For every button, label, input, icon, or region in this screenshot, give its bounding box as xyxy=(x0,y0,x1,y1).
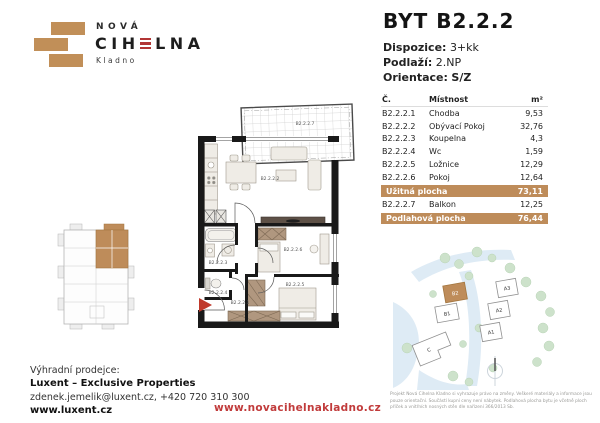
sink xyxy=(206,244,215,257)
logo-cihelna-text: CIH LNA xyxy=(95,34,205,53)
room-label-loznice: B2.2.2.5 xyxy=(286,282,305,288)
toilet xyxy=(206,278,222,289)
cell-room: Wc xyxy=(428,147,505,156)
key-plan-highlighted-unit xyxy=(96,224,128,268)
site-buildings: A3 A2 A1 B2 B1 C xyxy=(412,278,518,366)
spec-podlazi-value: 2.NP xyxy=(436,56,461,69)
building-label-a1: A1 xyxy=(487,329,495,336)
brand-logo: NOVÁ CIH LNA Kladno xyxy=(0,0,210,80)
spec-dispozice-value: 3+kk xyxy=(450,41,479,54)
cell-area: 12,29 xyxy=(505,160,548,169)
cell-no: B2.2.2.3 xyxy=(381,134,428,143)
washing-machine xyxy=(222,244,234,256)
cell-room: Balkon xyxy=(428,200,505,209)
cell-room: Obývací Pokoj xyxy=(428,122,505,131)
floor-area-value: 76,44 xyxy=(518,214,543,223)
cell-no: B2.2.2.6 xyxy=(381,173,428,182)
building-a2: A2 xyxy=(488,300,510,319)
brick-icon xyxy=(49,54,83,67)
wardrobe xyxy=(247,280,265,306)
disclaimer-text: Projekt Nová Cihelna Kladno si vyhrazuje… xyxy=(390,392,592,412)
cell-no: B2.2.2.5 xyxy=(381,160,428,169)
building-label-a2: A2 xyxy=(495,307,503,314)
building-b1: B1 xyxy=(435,303,459,323)
table-row: B2.2.2.2 Obývací Pokoj 32,76 xyxy=(381,120,548,133)
table-row: B2.2.2.3 Koupelna 4,3 xyxy=(381,133,548,146)
bathtub xyxy=(206,229,237,242)
seller-website-link[interactable]: www.luxent.cz xyxy=(30,405,112,416)
usable-area-row: Užitná plocha 73,11 xyxy=(381,185,548,197)
logo-city-text: Kladno xyxy=(96,56,137,65)
building-label-a3: A3 xyxy=(503,285,511,292)
cell-area: 4,3 xyxy=(505,134,548,143)
col-number: Č. xyxy=(381,95,428,104)
cell-room: Ložnice xyxy=(428,160,505,169)
spec-podlazi: Podlaží: 2.NP xyxy=(383,56,461,69)
table-row: B2.2.2.5 Ložnice 12,29 xyxy=(381,158,548,171)
table-row: B2.2.2.7 Balkon 12,25 xyxy=(381,198,548,211)
building-b2-highlighted: B2 xyxy=(443,282,468,303)
logo-nova-text: NOVÁ xyxy=(96,22,142,32)
room-label-koupelna: B2.2.2.3 xyxy=(209,260,228,266)
project-website-link[interactable]: www.novacihelnakladno.cz xyxy=(214,402,381,414)
spec-podlazi-label: Podlaží: xyxy=(383,56,432,69)
room-label-balkon: B2.2.2.7 xyxy=(296,121,315,127)
spec-orientace-value: S/Z xyxy=(451,71,471,84)
room-table-header: Č. Místnost m² xyxy=(381,92,548,107)
table-row: B2.2.2.6 Pokoj 12,64 xyxy=(381,171,548,184)
flat-datasheet-page: NOVÁ CIH LNA Kladno BYT B2.2.2 Dispozice… xyxy=(0,0,600,423)
cell-no: B2.2.2.2 xyxy=(381,122,428,131)
table-row: B2.2.2.4 Wc 1,59 xyxy=(381,145,548,158)
table-row: B2.2.2.1 Chodba 9,53 xyxy=(381,107,548,120)
usable-area-value: 73,11 xyxy=(518,187,543,196)
room-label-pokoj: B2.2.2.6 xyxy=(284,247,303,253)
cell-area: 1,59 xyxy=(505,147,548,156)
building-label-b2: B2 xyxy=(452,290,460,297)
double-bed xyxy=(279,288,316,320)
kitchen-counter xyxy=(205,144,218,214)
room-table: Č. Místnost m² B2.2.2.1 Chodba 9,53 B2.2… xyxy=(381,92,548,226)
cell-area: 12,64 xyxy=(505,173,548,182)
apartment-floorplan: B2.2.2.7 xyxy=(133,82,383,340)
building-a3: A3 xyxy=(496,278,518,297)
cell-room: Pokoj xyxy=(428,173,505,182)
building-label-b1: B1 xyxy=(443,311,451,318)
cell-room: Koupelna xyxy=(428,134,505,143)
compass-icon xyxy=(488,356,503,386)
spec-dispozice-label: Dispozice: xyxy=(383,41,446,54)
cell-area: 9,53 xyxy=(505,109,548,118)
cell-area: 12,25 xyxy=(505,200,548,209)
usable-area-label: Užitná plocha xyxy=(386,187,518,196)
cell-no: B2.2.2.4 xyxy=(381,147,428,156)
wardrobe xyxy=(258,228,286,240)
page-title: BYT B2.2.2 xyxy=(383,9,514,33)
floor-area-row: Podlahová plocha 76,44 xyxy=(381,213,548,225)
single-bed xyxy=(258,242,280,272)
room-label-wc: B2.2.2.4 xyxy=(209,290,228,296)
spec-dispozice: Dispozice: 3+kk xyxy=(383,41,479,54)
room-label-obyvaci: B2.2.2.2 xyxy=(261,176,280,182)
brick-icon xyxy=(34,38,68,51)
logo-cihelna-left: CIH xyxy=(95,34,140,53)
building-a1: A1 xyxy=(480,322,502,341)
room-label-chodba: B2.2.2.1 xyxy=(231,300,250,306)
brick-icon xyxy=(51,22,85,35)
cell-room: Chodba xyxy=(428,109,505,118)
col-area: m² xyxy=(505,95,548,104)
cell-no: B2.2.2.1 xyxy=(381,109,428,118)
cell-no: B2.2.2.7 xyxy=(381,200,428,209)
spec-orientace: Orientace: S/Z xyxy=(383,71,471,84)
seller-name: Luxent – Exclusive Properties xyxy=(30,378,195,389)
logo-e-stripes-icon xyxy=(140,37,151,50)
wardrobe xyxy=(228,311,280,321)
seller-label: Výhradní prodejce: xyxy=(30,365,120,376)
site-plan: A3 A2 A1 B2 B1 C xyxy=(393,238,563,390)
floor-key-plan xyxy=(56,222,141,332)
desk xyxy=(310,234,329,264)
cell-area: 32,76 xyxy=(505,122,548,131)
col-room: Místnost xyxy=(428,95,505,104)
spec-orientace-label: Orientace: xyxy=(383,71,448,84)
floor-area-label: Podlahová plocha xyxy=(386,214,518,223)
logo-cihelna-right: LNA xyxy=(155,34,204,53)
